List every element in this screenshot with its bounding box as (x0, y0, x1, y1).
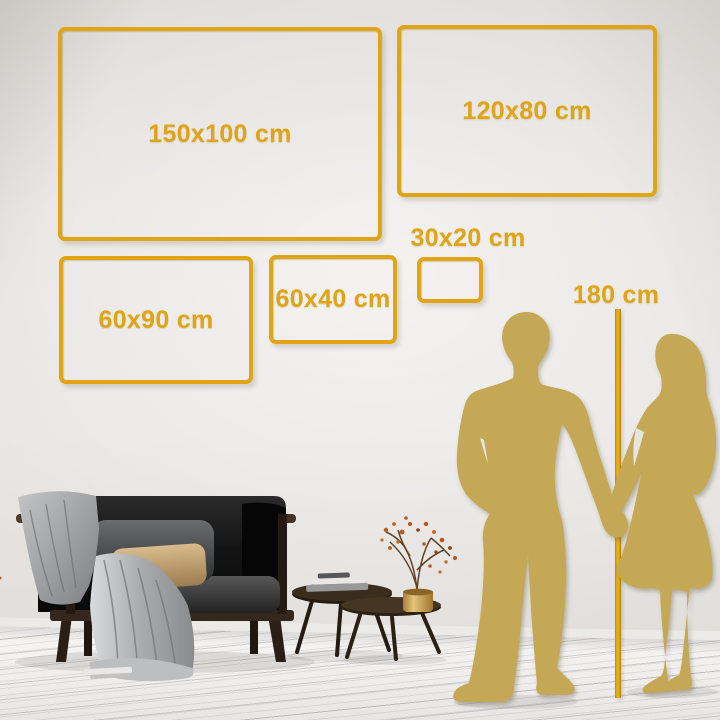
man-silhouette (453, 312, 628, 702)
size-guide-scene: 150x100 cm 120x80 cm 60x90 cm 60x40 cm 3… (0, 0, 720, 720)
coffee-tables (292, 572, 441, 659)
scene-artwork (0, 0, 720, 720)
books-on-table (306, 572, 369, 592)
couple-silhouette (453, 312, 716, 702)
blanket-on-armrest (18, 491, 99, 604)
sofa (16, 491, 296, 681)
